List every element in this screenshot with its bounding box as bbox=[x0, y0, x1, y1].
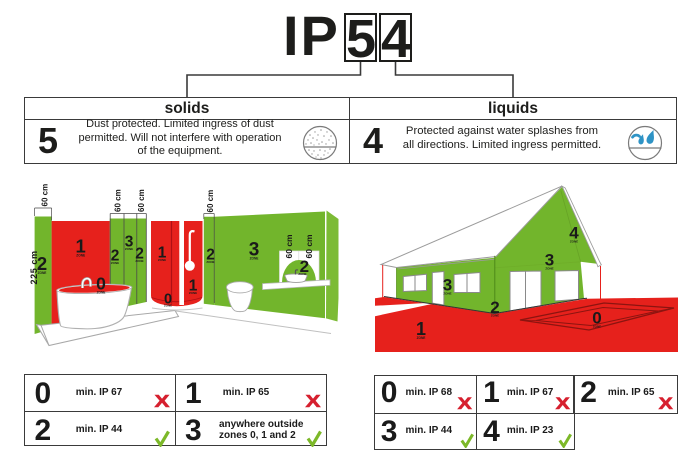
svg-text:ZONE: ZONE bbox=[298, 272, 306, 276]
svg-text:ZONE: ZONE bbox=[250, 257, 259, 261]
svg-text:ZONE: ZONE bbox=[189, 291, 197, 295]
svg-text:ZONE: ZONE bbox=[570, 239, 578, 243]
svg-text:ZONE: ZONE bbox=[158, 258, 166, 262]
svg-text:60 cm: 60 cm bbox=[284, 234, 294, 259]
svg-text:ZONE: ZONE bbox=[206, 260, 214, 264]
svg-text:60 cm: 60 cm bbox=[137, 189, 146, 212]
svg-text:225 cm: 225 cm bbox=[29, 250, 39, 284]
svg-text:60 cm: 60 cm bbox=[41, 184, 50, 207]
svg-text:60 cm: 60 cm bbox=[114, 189, 123, 212]
svg-text:60 cm: 60 cm bbox=[304, 234, 314, 259]
svg-text:ZONE: ZONE bbox=[491, 314, 499, 318]
svg-text:ZONE: ZONE bbox=[164, 304, 172, 308]
svg-text:ZONE: ZONE bbox=[443, 291, 451, 295]
svg-text:ZONE: ZONE bbox=[135, 259, 143, 263]
svg-text:ZONE: ZONE bbox=[111, 261, 119, 265]
svg-text:ZONE: ZONE bbox=[76, 254, 85, 258]
svg-text:ZONE: ZONE bbox=[545, 266, 553, 270]
svg-text:ZONE: ZONE bbox=[125, 247, 133, 251]
svg-text:ZONE: ZONE bbox=[593, 324, 601, 328]
svg-text:ZONE: ZONE bbox=[417, 336, 426, 340]
svg-text:60 cm: 60 cm bbox=[206, 190, 215, 213]
svg-text:ZONE: ZONE bbox=[97, 290, 106, 294]
